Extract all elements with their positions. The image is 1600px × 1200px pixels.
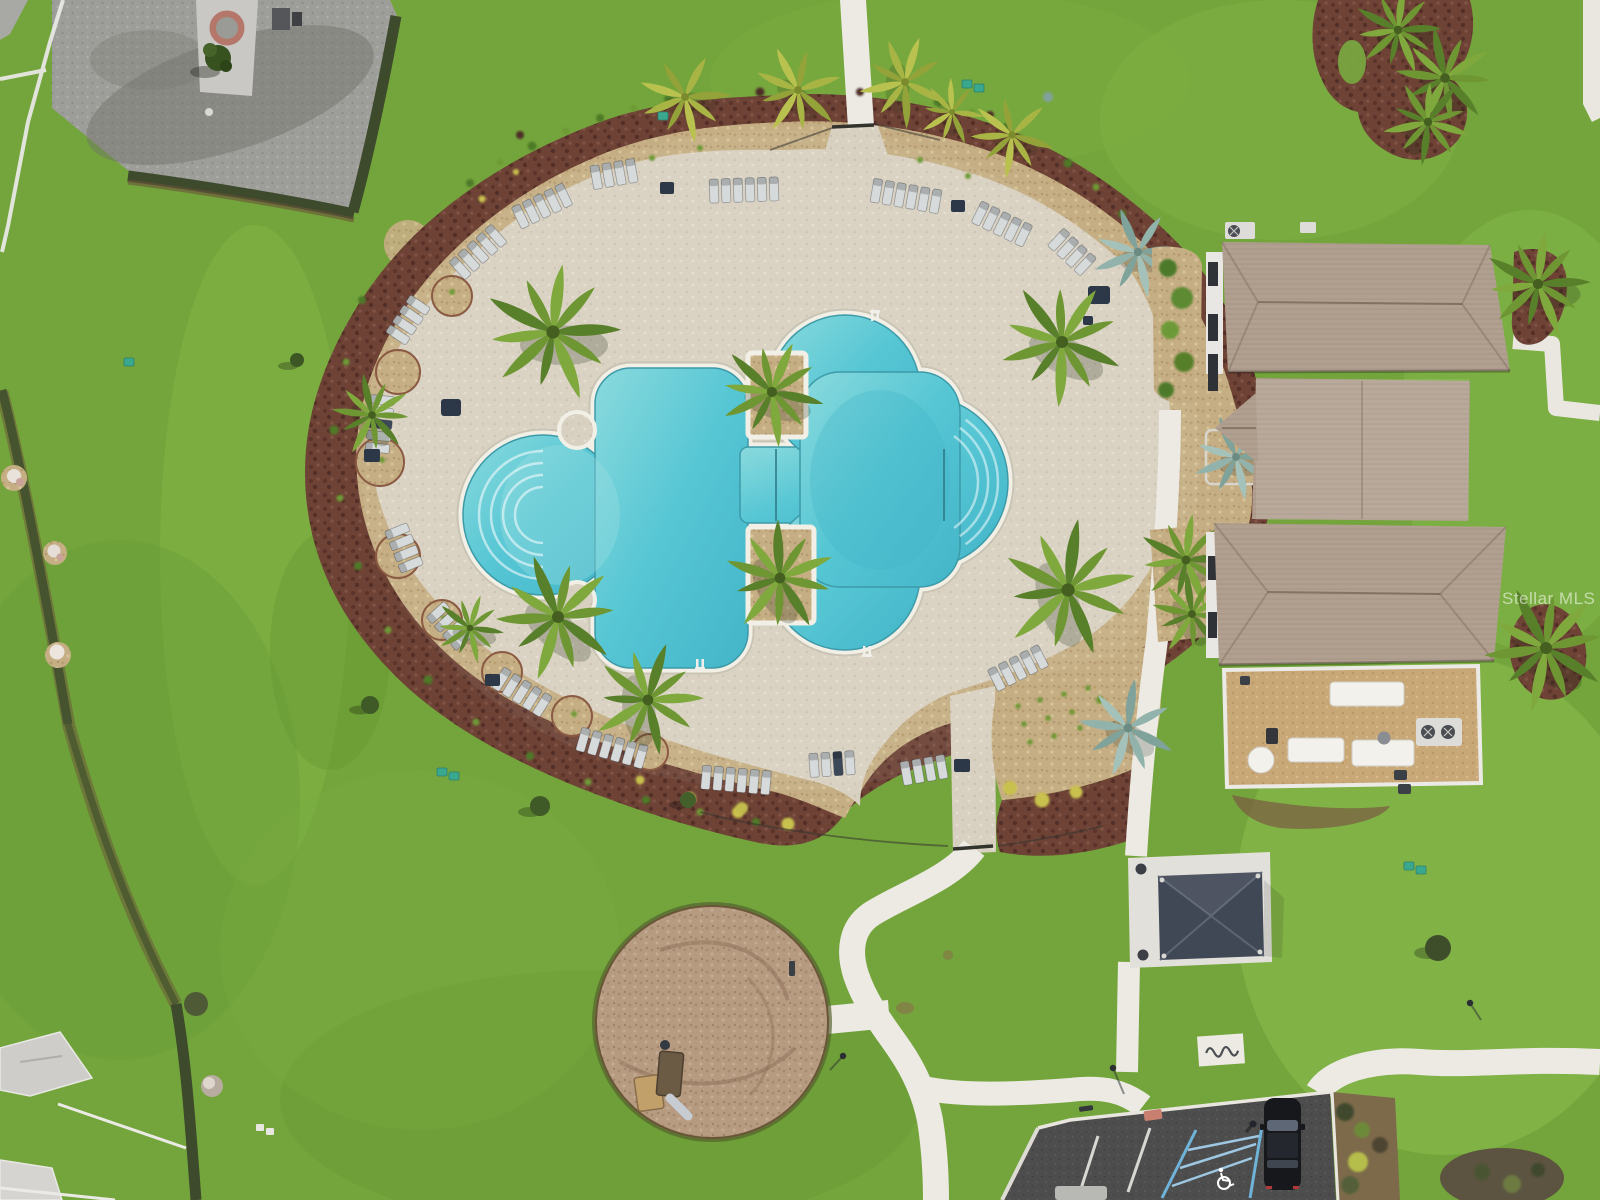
bike-rack-pad bbox=[1197, 1033, 1245, 1066]
pavilion-path bbox=[1127, 962, 1129, 1072]
trash-can bbox=[1136, 864, 1147, 875]
bin bbox=[1378, 732, 1391, 745]
parked-car bbox=[1260, 1098, 1305, 1190]
grill bbox=[1266, 728, 1278, 744]
clubhouse-windows bbox=[1208, 262, 1218, 391]
manhole bbox=[205, 108, 214, 117]
west-hedge-bed bbox=[1152, 247, 1202, 404]
entry-gate bbox=[832, 125, 874, 127]
clubhouse-roof-north bbox=[1222, 242, 1510, 372]
partial-vehicle bbox=[1055, 1186, 1107, 1200]
aerial-photo: Stellar MLS bbox=[0, 0, 1600, 1200]
trash-can bbox=[1138, 950, 1149, 961]
park-bench bbox=[789, 961, 795, 976]
watermark: Stellar MLS bbox=[1502, 589, 1595, 608]
playground bbox=[592, 902, 832, 1142]
ac-unit-pair bbox=[1416, 718, 1462, 746]
patio-table bbox=[1248, 747, 1274, 773]
pavilion bbox=[1128, 852, 1284, 968]
playground-connector bbox=[826, 1000, 890, 1034]
parking-island-bed bbox=[1332, 1092, 1400, 1200]
swing-seat bbox=[660, 1040, 670, 1050]
pad-equipment bbox=[272, 8, 290, 30]
corner-path-ne bbox=[1592, 0, 1600, 118]
